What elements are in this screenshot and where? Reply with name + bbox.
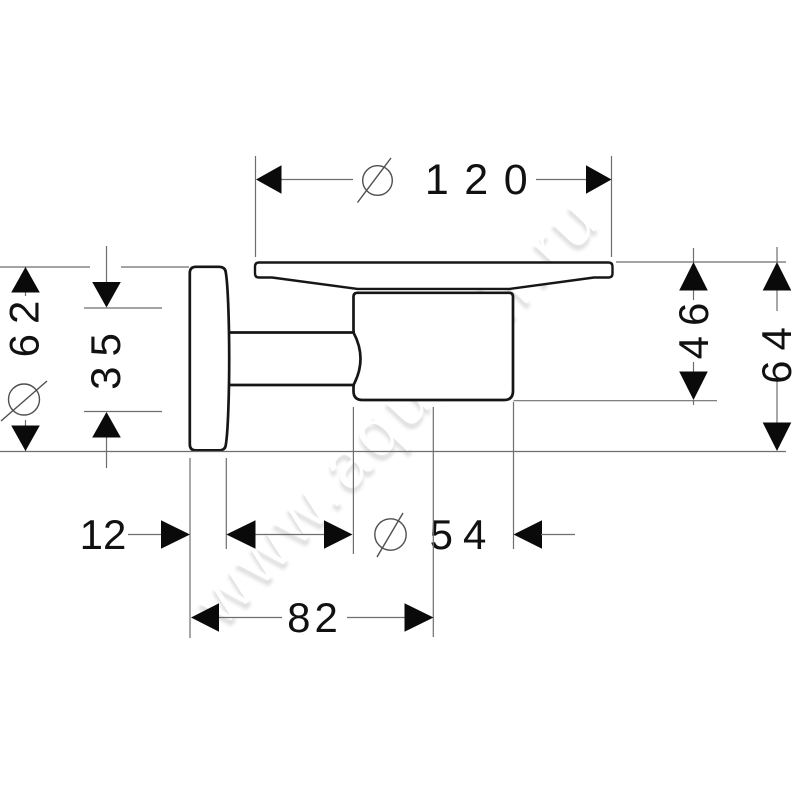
svg-text:64: 64 — [753, 317, 800, 384]
svg-text:12: 12 — [80, 511, 127, 558]
svg-text:www.aquamir.ru: www.aquamir.ru — [178, 178, 615, 639]
svg-text:35: 35 — [82, 323, 129, 390]
svg-text:120: 120 — [425, 156, 543, 204]
svg-text:46: 46 — [670, 293, 717, 360]
svg-text:54: 54 — [430, 511, 497, 558]
svg-text:82: 82 — [287, 594, 342, 641]
svg-text:62: 62 — [1, 291, 48, 358]
